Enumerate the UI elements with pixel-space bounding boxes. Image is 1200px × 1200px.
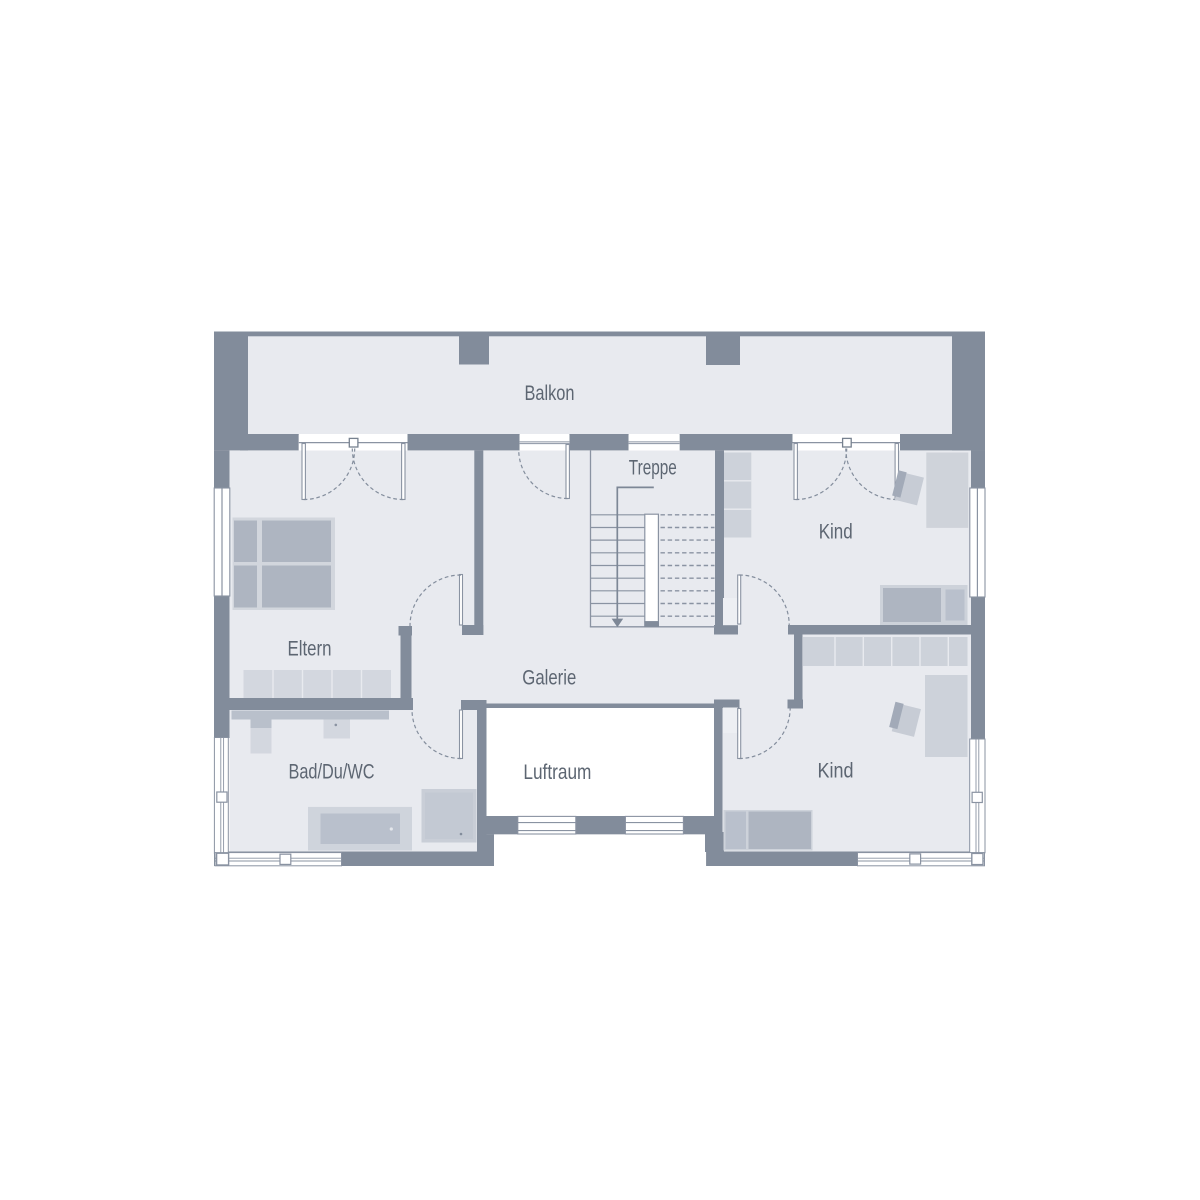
svg-text:Kind: Kind — [818, 760, 854, 783]
svg-text:Bad/Du/WC: Bad/Du/WC — [289, 760, 375, 783]
svg-text:Luftraum: Luftraum — [523, 761, 591, 784]
svg-text:Kind: Kind — [819, 521, 853, 544]
svg-text:Treppe: Treppe — [629, 457, 677, 480]
svg-text:Eltern: Eltern — [288, 638, 332, 661]
svg-text:Galerie: Galerie — [522, 667, 576, 690]
svg-text:Balkon: Balkon — [525, 382, 575, 405]
